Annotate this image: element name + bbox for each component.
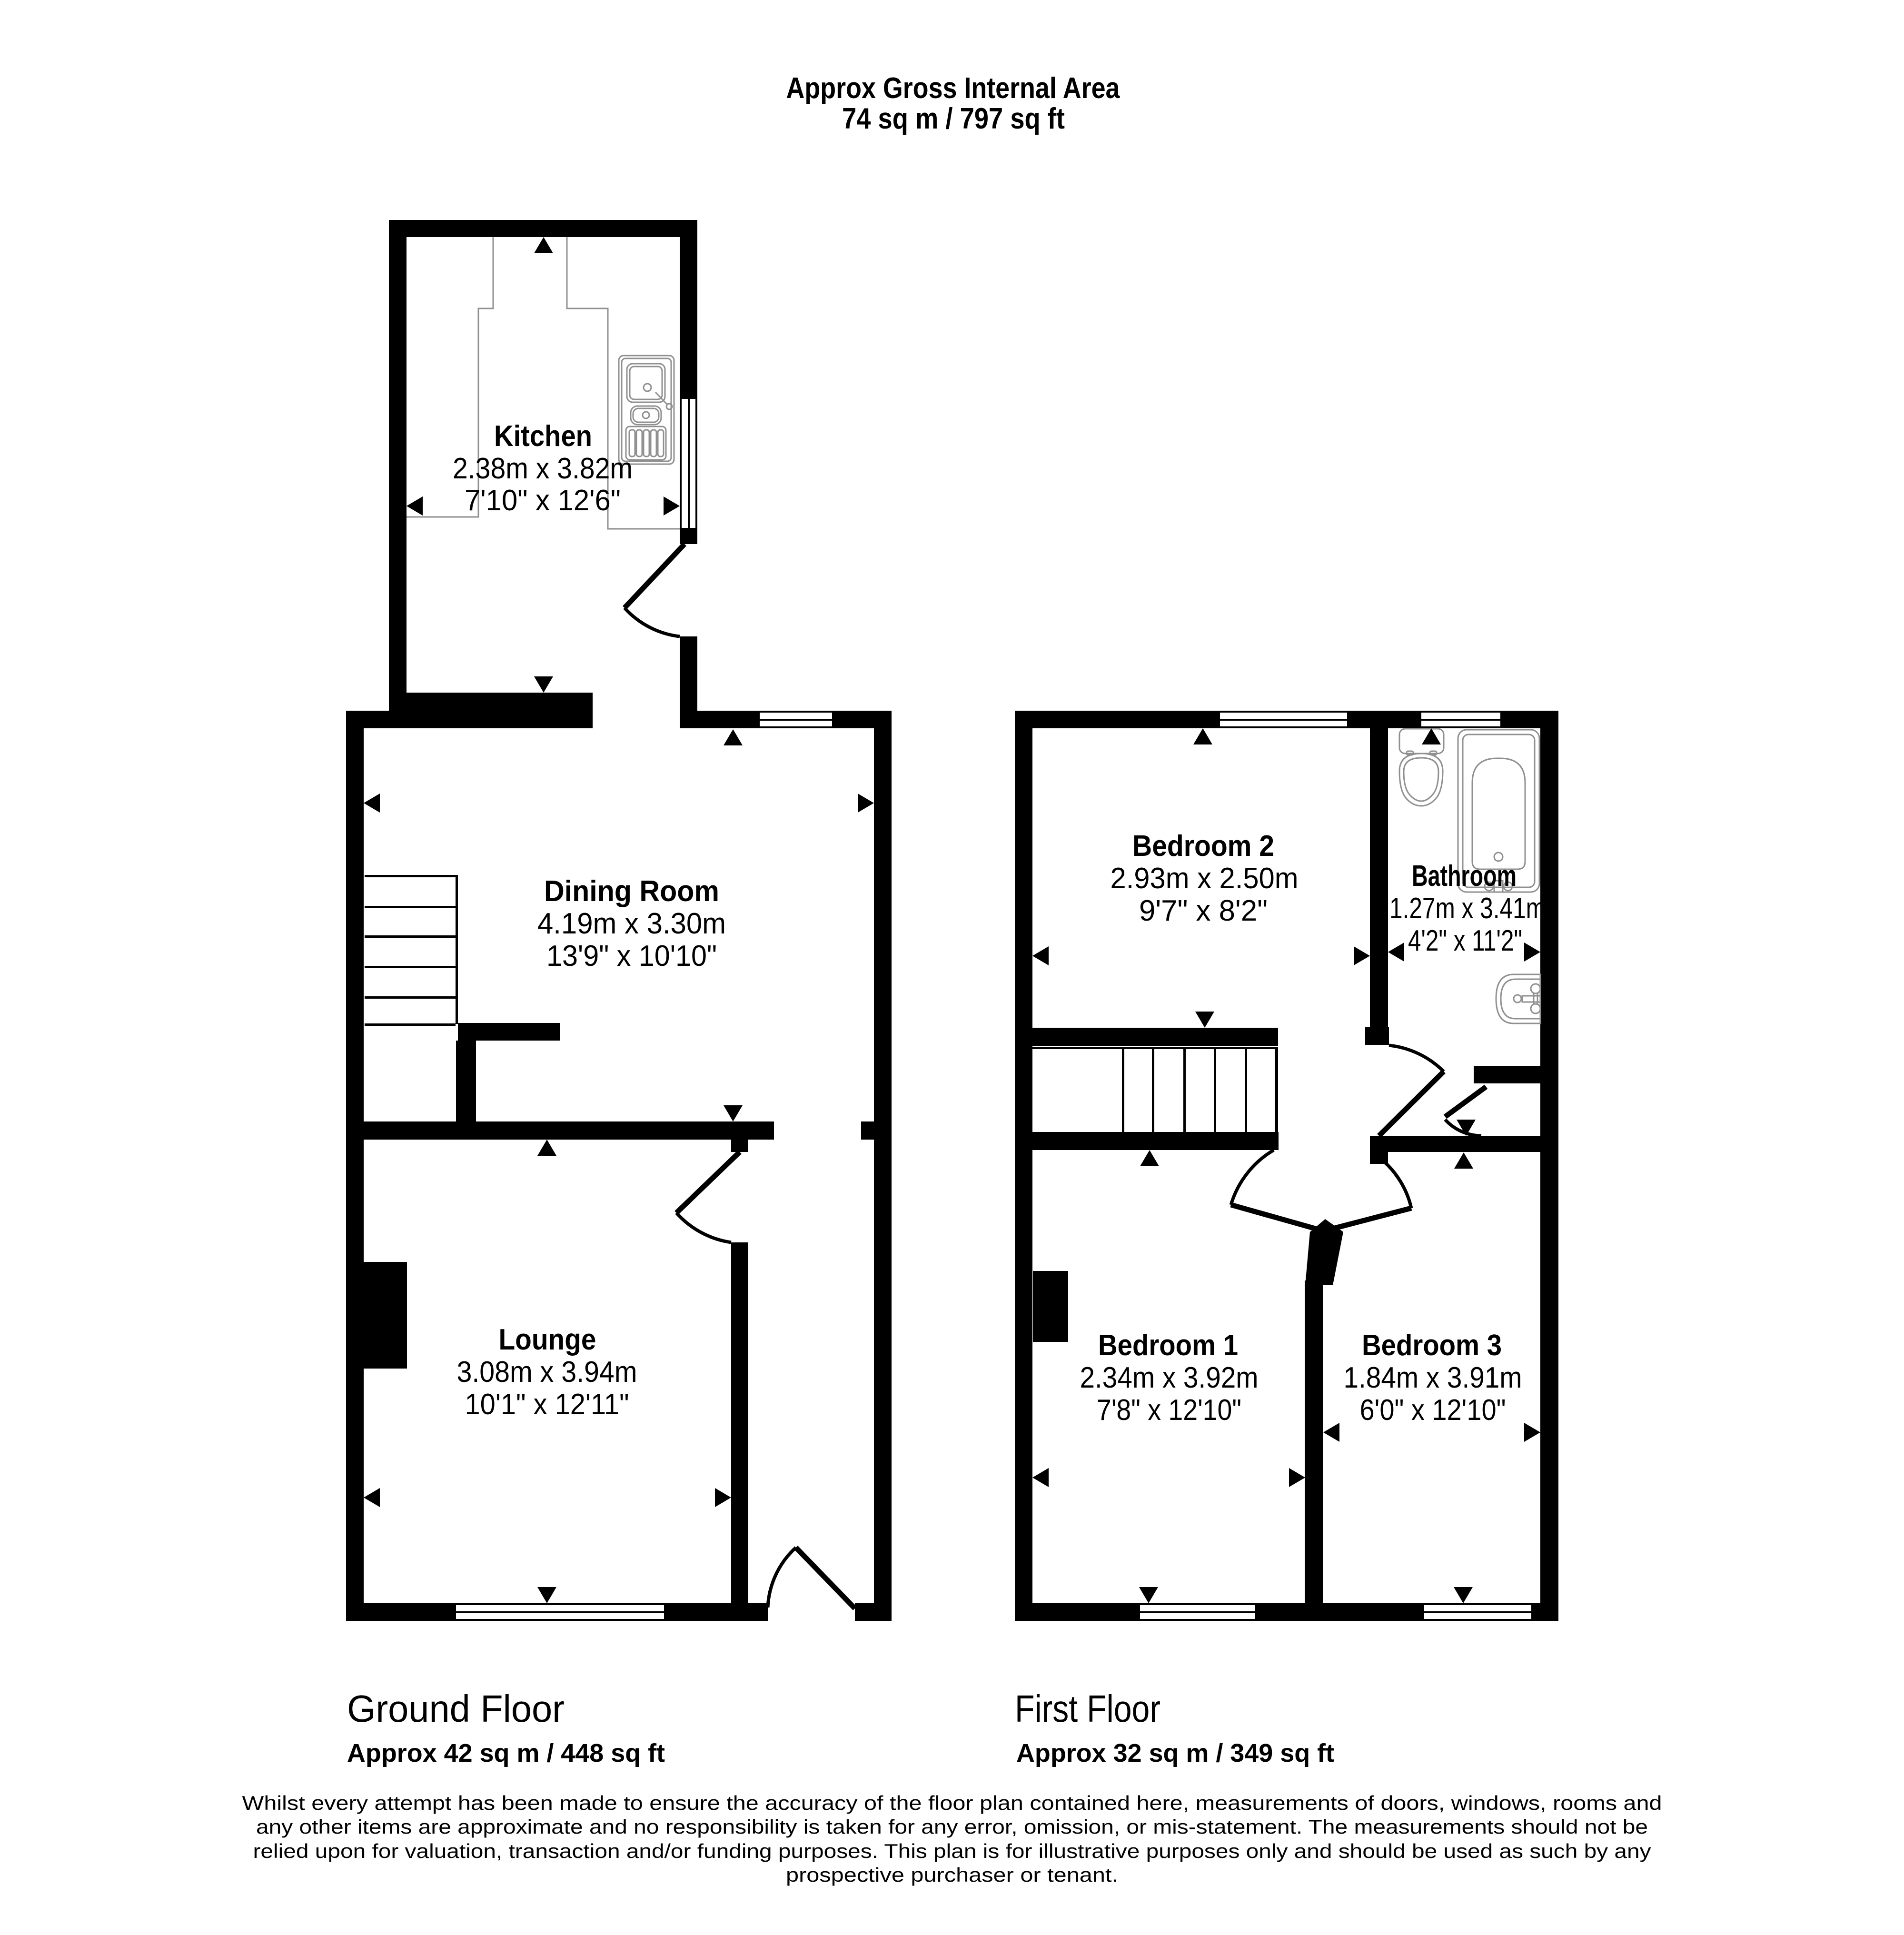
svg-text:74 sq m / 797 sq ft: 74 sq m / 797 sq ft	[842, 102, 1065, 135]
svg-text:Bathroom: Bathroom	[1412, 860, 1517, 893]
svg-text:4.19m x 3.30m: 4.19m x 3.30m	[537, 907, 726, 940]
svg-text:Bedroom 3: Bedroom 3	[1362, 1329, 1502, 1362]
svg-text:Bedroom 2: Bedroom 2	[1132, 830, 1274, 863]
svg-text:Approx 42 sq m / 448 sq ft: Approx 42 sq m / 448 sq ft	[347, 1739, 665, 1767]
svg-text:7'8" x 12'10": 7'8" x 12'10"	[1097, 1394, 1241, 1427]
svg-text:13'9" x 10'10": 13'9" x 10'10"	[546, 940, 717, 972]
svg-text:3.08m x 3.94m: 3.08m x 3.94m	[457, 1356, 637, 1389]
svg-text:Approx 32 sq m / 349 sq ft: Approx 32 sq m / 349 sq ft	[1016, 1739, 1334, 1767]
svg-text:10'1" x 12'11": 10'1" x 12'11"	[465, 1388, 629, 1421]
svg-text:2.93m x 2.50m: 2.93m x 2.50m	[1111, 862, 1299, 895]
svg-text:Dining Room: Dining Room	[544, 875, 719, 908]
svg-text:prospective purchaser or tenan: prospective purchaser or tenant.	[786, 1864, 1118, 1886]
svg-text:6'0" x 12'10": 6'0" x 12'10"	[1360, 1394, 1506, 1427]
svg-text:2.38m x 3.82m: 2.38m x 3.82m	[453, 452, 633, 485]
svg-text:9'7" x 8'2": 9'7" x 8'2"	[1139, 894, 1268, 927]
svg-text:Ground Floor: Ground Floor	[347, 1687, 565, 1730]
svg-text:Whilst every attempt has been: Whilst every attempt has been made to en…	[242, 1792, 1662, 1814]
svg-text:1.84m x 3.91m: 1.84m x 3.91m	[1344, 1361, 1522, 1394]
svg-text:relied upon for valuation, tra: relied upon for valuation, transaction a…	[253, 1840, 1651, 1862]
svg-text:4'2" x 11'2": 4'2" x 11'2"	[1408, 924, 1522, 957]
svg-text:Approx Gross Internal Area: Approx Gross Internal Area	[786, 72, 1120, 105]
svg-text:any other items are approximat: any other items are approximate and no r…	[256, 1816, 1648, 1838]
svg-text:Bedroom 1: Bedroom 1	[1098, 1329, 1238, 1362]
svg-text:Kitchen: Kitchen	[494, 420, 592, 453]
svg-text:7'10" x 12'6": 7'10" x 12'6"	[465, 484, 621, 517]
svg-text:2.34m x 3.92m: 2.34m x 3.92m	[1080, 1361, 1259, 1394]
svg-text:1.27m x 3.41m: 1.27m x 3.41m	[1389, 892, 1546, 925]
svg-text:Lounge: Lounge	[499, 1323, 596, 1356]
svg-text:First Floor: First Floor	[1015, 1687, 1160, 1730]
